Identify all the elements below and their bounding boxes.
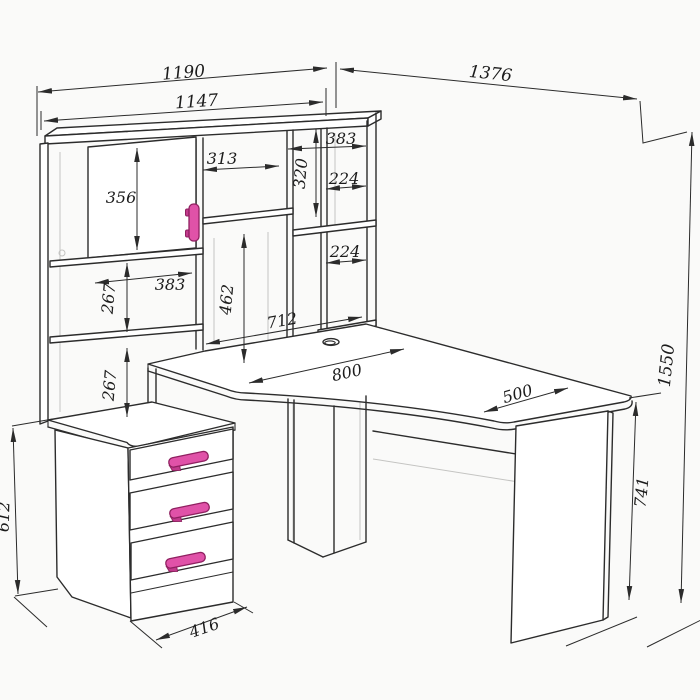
dim-label-356: 356	[106, 188, 137, 207]
dim-1376: 1376	[340, 62, 637, 99]
hutch-door	[88, 137, 196, 258]
dim-224-upper: 224	[326, 169, 366, 189]
dim-label-741: 741	[630, 476, 652, 508]
furniture-drawing: 1190 1147 1376 1550 741 612 416	[0, 0, 700, 700]
dim-label-1147: 1147	[174, 91, 219, 114]
dim-label-1190: 1190	[161, 61, 206, 84]
hutch-left-panel	[40, 143, 48, 424]
desktop	[148, 324, 632, 430]
dim-label-320: 320	[290, 157, 312, 189]
dim-label-267-lower: 267	[99, 369, 121, 403]
dim-1550: 1550	[655, 132, 692, 603]
dim-383-top: 383	[288, 129, 366, 149]
cable-grommet	[323, 339, 339, 346]
dim-label-224-lower: 224	[329, 242, 361, 261]
desk-right-panel	[511, 411, 613, 643]
dim-313: 313	[203, 149, 279, 170]
corner-leg-column	[288, 396, 366, 557]
dim-612: 612	[0, 428, 18, 594]
blueprint-page: 1190 1147 1376 1550 741 612 416	[0, 0, 700, 700]
pedestal-left-panel	[55, 430, 131, 618]
desktop-surface	[148, 324, 631, 423]
dim-label-313: 313	[207, 149, 238, 168]
dim-label-267-upper: 267	[98, 282, 120, 316]
dim-1190: 1190	[38, 61, 327, 92]
dim-267-upper: 267	[98, 263, 127, 332]
hutch-shelf	[203, 208, 293, 224]
dim-label-1550: 1550	[655, 343, 679, 388]
drawer-unit	[48, 402, 235, 621]
dim-741: 741	[629, 402, 653, 600]
dim-224-lower: 224	[326, 242, 366, 263]
dim-label-383-top: 383	[326, 129, 357, 148]
dim-label-462: 462	[216, 283, 238, 316]
dim-label-612: 612	[0, 501, 14, 532]
dim-label-224-upper: 224	[328, 169, 360, 188]
dim-label-416: 416	[186, 614, 222, 642]
dim-label-383-left: 383	[155, 275, 186, 294]
dim-462: 462	[216, 234, 244, 363]
